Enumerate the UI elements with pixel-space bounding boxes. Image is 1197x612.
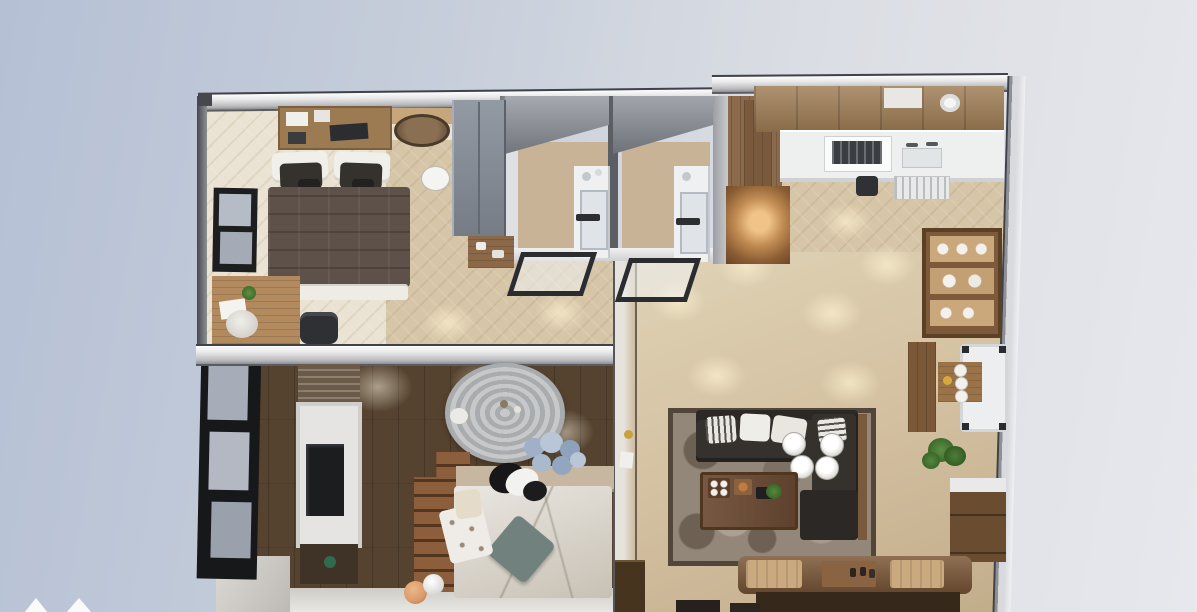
media-shelf-plant — [324, 556, 336, 568]
shelf-laptop — [329, 123, 368, 142]
bathroom1-sink-dot — [595, 169, 602, 176]
kitchen-counter — [780, 130, 1004, 182]
hydrangea-bouquet — [520, 430, 590, 482]
office-chair — [300, 312, 338, 344]
shelf-books — [286, 112, 308, 126]
kitchen-upper-cabinets — [754, 86, 1004, 132]
table-plant — [766, 484, 782, 499]
dish-rack — [894, 176, 950, 200]
console-cabinet — [615, 560, 645, 612]
rug-decor — [514, 406, 521, 413]
hydrangea-bloom — [532, 454, 551, 472]
glass-pane — [207, 362, 248, 421]
chandelier-light — [820, 433, 844, 457]
bathroom2-sink-dot — [682, 172, 691, 181]
bedrooms-divider-wall — [196, 344, 620, 366]
console-gold-clock — [624, 430, 633, 439]
open-shelf — [468, 236, 514, 268]
bench-table-side — [908, 342, 936, 432]
shelf-box — [288, 132, 306, 144]
stool — [730, 603, 760, 612]
bench-corner-bracket — [962, 423, 969, 430]
throw-pillow-striped — [705, 415, 737, 444]
hutch-shelf — [930, 236, 994, 262]
throw-pillow-white — [739, 413, 770, 442]
condiment — [860, 567, 866, 576]
cream-pillow — [453, 488, 483, 519]
plate — [955, 377, 968, 390]
slatted-panel — [298, 364, 360, 406]
potted-plant — [922, 452, 940, 469]
kitchen-ceiling-light — [940, 94, 960, 112]
hutch-shelf — [930, 268, 994, 294]
table-runner — [822, 561, 876, 587]
shelf-item — [492, 250, 504, 258]
window-pane — [219, 194, 252, 227]
tv-screen — [306, 444, 344, 516]
watermark-triangle — [66, 598, 92, 612]
shelf-books — [314, 110, 330, 122]
hydrangea-bloom — [570, 452, 586, 468]
sink-faucet — [906, 143, 918, 147]
table-wood-tray — [734, 479, 752, 495]
console-cards — [619, 451, 634, 468]
stool — [676, 600, 720, 612]
lit-display-cabinet — [726, 186, 790, 264]
rug-decor — [500, 400, 508, 408]
sofa-ottoman — [800, 490, 858, 540]
kitchen-cabinet-white-gap — [884, 88, 922, 108]
bench-corner-bracket — [999, 423, 1006, 430]
watermark-triangle — [24, 598, 48, 612]
bed-blanket — [268, 187, 410, 287]
placemat — [746, 560, 802, 588]
chandelier-light — [782, 432, 806, 456]
potted-plant — [944, 446, 966, 466]
bathroom2-handle — [676, 218, 700, 225]
floor-plan-render — [0, 0, 1197, 612]
dining-bench — [756, 592, 960, 612]
hydrangea-bloom — [552, 456, 572, 475]
bathroom2-glass-screen — [615, 258, 701, 302]
hutch-shelf — [930, 300, 994, 326]
wall-clock — [421, 166, 450, 191]
condiment — [850, 568, 856, 577]
plate — [954, 364, 967, 377]
drawer-cabinet — [950, 478, 1006, 562]
kettle — [856, 176, 878, 196]
glass-pane — [210, 502, 251, 559]
round-wall-mirror — [394, 114, 450, 147]
glass-pane — [208, 432, 249, 491]
lemon — [943, 376, 952, 385]
sink-basin — [902, 148, 942, 168]
sofa-wood-trim — [858, 414, 867, 540]
wardrobe-seam — [478, 102, 480, 234]
stove-window — [832, 141, 882, 164]
toy-ball-white — [423, 574, 444, 595]
chandelier-light — [815, 456, 839, 480]
bathroom1-glass-screen — [507, 252, 597, 296]
rug-pillow — [450, 408, 468, 424]
sink-faucet — [926, 142, 938, 146]
plate — [955, 390, 968, 403]
table-tray-dots — [708, 478, 730, 498]
condiment — [869, 569, 875, 578]
shelf-item — [476, 242, 486, 250]
placemat — [890, 560, 944, 588]
plan-corner-notch — [198, 93, 212, 106]
desk-chair — [226, 310, 258, 338]
bench-corner-bracket — [962, 346, 969, 353]
window-pane — [220, 232, 253, 265]
bathroom1-sink-dot — [582, 172, 591, 181]
left-outer-wall — [197, 96, 207, 348]
bench-corner-bracket — [999, 346, 1006, 353]
bathroom1-handle — [576, 214, 600, 221]
